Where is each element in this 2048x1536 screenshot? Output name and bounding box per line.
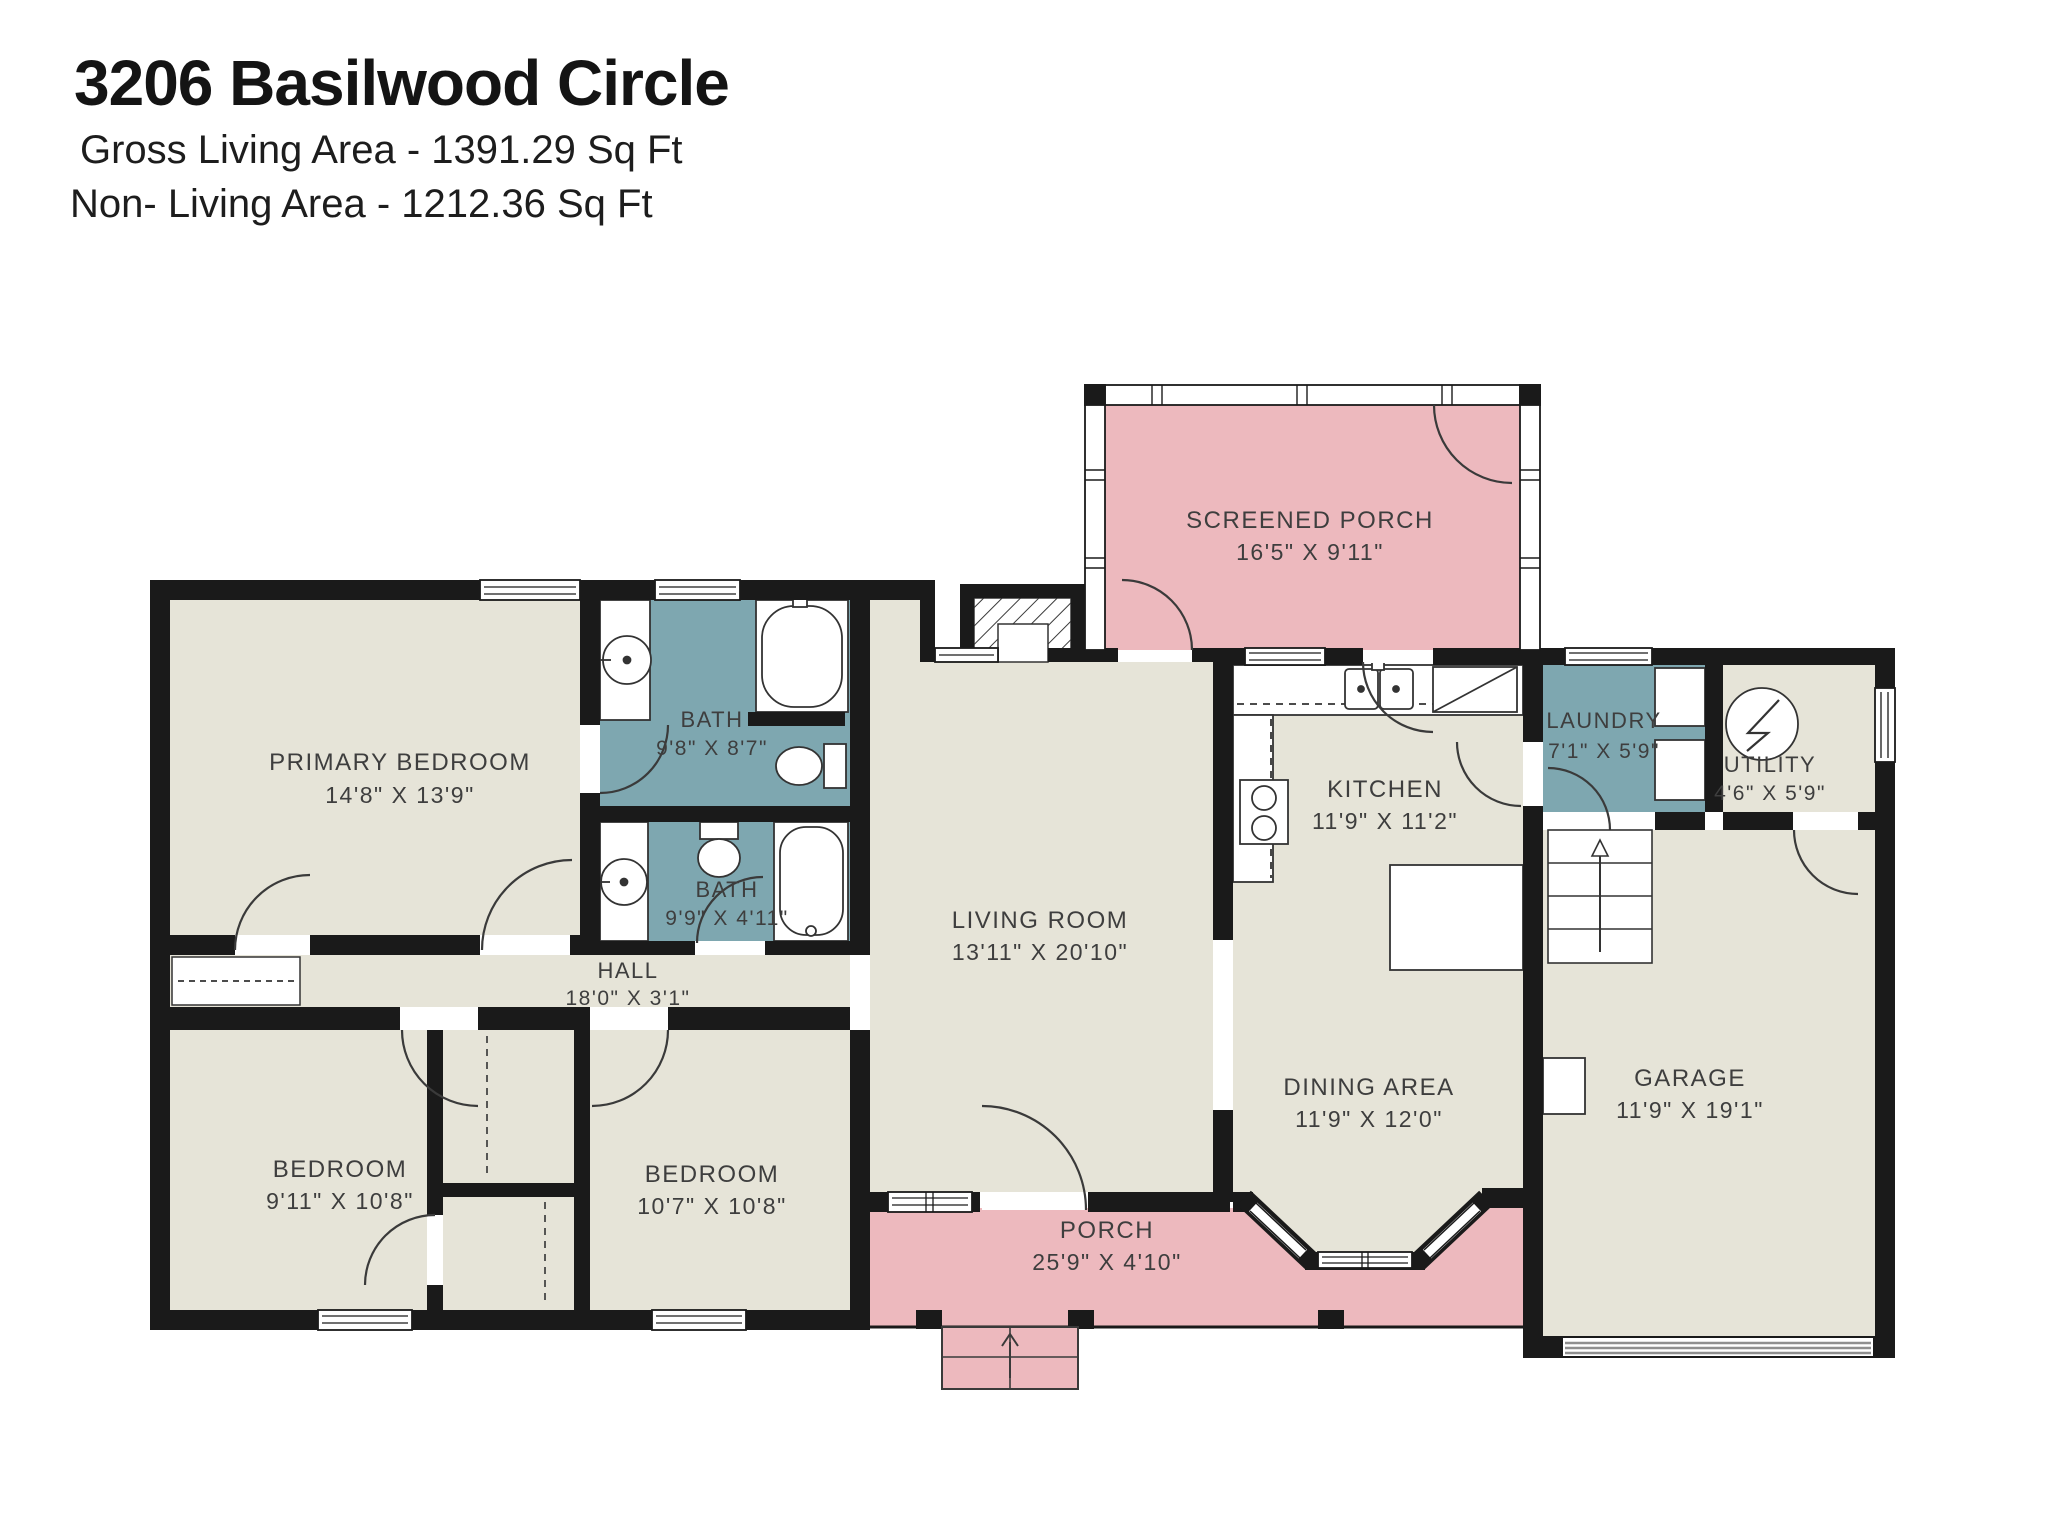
dims-utility: 4'6" X 5'9" (1714, 782, 1826, 805)
dims-laundry: 7'1" X 5'9" (1548, 740, 1660, 763)
screen-wall (1520, 385, 1540, 650)
toilet-icon (698, 839, 740, 877)
bathtub-icon (780, 827, 843, 935)
water-heater-icon (1726, 688, 1798, 760)
dims-bath-main: 9'8" X 8'7" (656, 737, 768, 760)
kitchen-island (1390, 865, 1523, 970)
label-bath-hall: BATH (695, 877, 758, 902)
label-utility: UTILITY (1724, 752, 1816, 777)
dryer-icon (1655, 740, 1705, 800)
sink-drain-icon (1393, 686, 1399, 692)
porch-corner-post (1085, 385, 1105, 405)
burner-icon (1252, 786, 1276, 810)
closet-column (443, 1030, 574, 1310)
dims-dining-area: 11'9" X 12'0" (1295, 1106, 1443, 1132)
floor-plan-drawing: SCREENED PORCH 16'5" X 9'11" PRIMARY BED… (0, 0, 2048, 1536)
sink-drain-icon (1358, 686, 1364, 692)
dims-primary-bedroom: 14'8" X 13'9" (325, 782, 474, 808)
sink-drain-icon (621, 879, 628, 886)
label-laundry: LAUNDRY (1546, 708, 1661, 733)
label-kitchen: KITCHEN (1327, 776, 1443, 803)
bathtub-icon (762, 606, 842, 707)
label-bedroom-right: BEDROOM (645, 1161, 780, 1188)
dims-porch: 25'9" X 4'10" (1032, 1249, 1181, 1275)
stairs (1548, 830, 1652, 963)
burner-icon (1252, 816, 1276, 840)
dims-bedroom-right: 10'7" X 10'8" (637, 1193, 786, 1219)
label-bath-main: BATH (680, 707, 743, 732)
label-garage: GARAGE (1634, 1065, 1746, 1092)
label-bedroom-left: BEDROOM (273, 1156, 408, 1183)
label-primary-bedroom: PRIMARY BEDROOM (269, 749, 531, 776)
dims-screened-porch: 16'5" X 9'11" (1236, 539, 1384, 565)
dims-kitchen: 11'9" X 11'2" (1312, 808, 1458, 834)
dims-living-room: 13'11" X 20'10" (952, 939, 1128, 965)
label-hall: HALL (597, 958, 658, 983)
firebox-icon (998, 624, 1048, 662)
label-dining-area: DINING AREA (1283, 1074, 1454, 1101)
tub-faucet-icon (806, 926, 816, 936)
porch-post (1318, 1310, 1344, 1329)
label-porch: PORCH (1060, 1217, 1154, 1244)
floor-plan-page: 3206 Basilwood Circle Gross Living Area … (0, 0, 2048, 1536)
room-living-west (870, 600, 920, 1192)
sink-drain-icon (624, 657, 631, 664)
toilet-icon (776, 747, 822, 785)
porch-post (916, 1310, 942, 1329)
garage-panel (1543, 1058, 1585, 1114)
dims-bedroom-left: 9'11" X 10'8" (266, 1188, 414, 1214)
porch-corner-post (1520, 385, 1540, 405)
screen-wall (1085, 385, 1540, 405)
dims-bath-hall: 9'9" X 4'11" (665, 907, 788, 930)
label-living-room: LIVING ROOM (952, 907, 1129, 934)
toilet-tank-icon (824, 744, 846, 788)
screen-wall (1085, 385, 1105, 650)
label-screened-porch: SCREENED PORCH (1186, 507, 1434, 534)
garage-door (1563, 1338, 1873, 1356)
dims-garage: 11'9" X 19'1" (1616, 1097, 1764, 1123)
washer-icon (1655, 668, 1705, 726)
toilet-tank-icon (700, 822, 738, 839)
dims-hall: 18'0" X 3'1" (566, 987, 691, 1010)
